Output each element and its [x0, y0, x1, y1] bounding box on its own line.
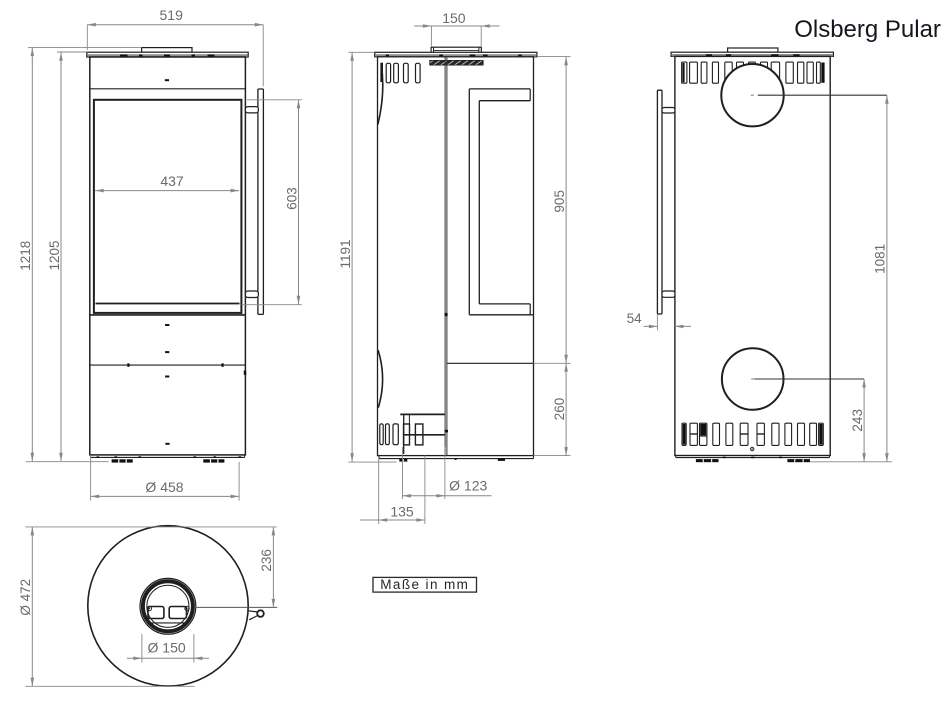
svg-text:Ø 472: Ø 472 [18, 579, 33, 616]
svg-text:519: 519 [160, 7, 184, 23]
svg-text:Ø 123: Ø 123 [449, 478, 487, 494]
svg-text:Ø 150: Ø 150 [148, 639, 186, 655]
svg-text:260: 260 [552, 398, 567, 421]
svg-text:603: 603 [284, 187, 299, 210]
svg-text:1205: 1205 [47, 240, 62, 270]
svg-text:905: 905 [552, 190, 567, 213]
svg-text:1081: 1081 [873, 244, 888, 274]
svg-text:236: 236 [259, 549, 274, 572]
svg-text:1218: 1218 [18, 241, 33, 271]
svg-text:54: 54 [627, 311, 643, 326]
svg-text:1191: 1191 [338, 239, 353, 268]
svg-text:135: 135 [390, 504, 414, 520]
svg-text:Maße in mm: Maße in mm [380, 577, 469, 592]
svg-text:437: 437 [160, 173, 184, 189]
svg-text:Olsberg Pular: Olsberg Pular [794, 16, 941, 43]
svg-text:Ø 458: Ø 458 [145, 479, 183, 495]
svg-text:243: 243 [850, 409, 865, 432]
svg-text:150: 150 [442, 10, 466, 26]
